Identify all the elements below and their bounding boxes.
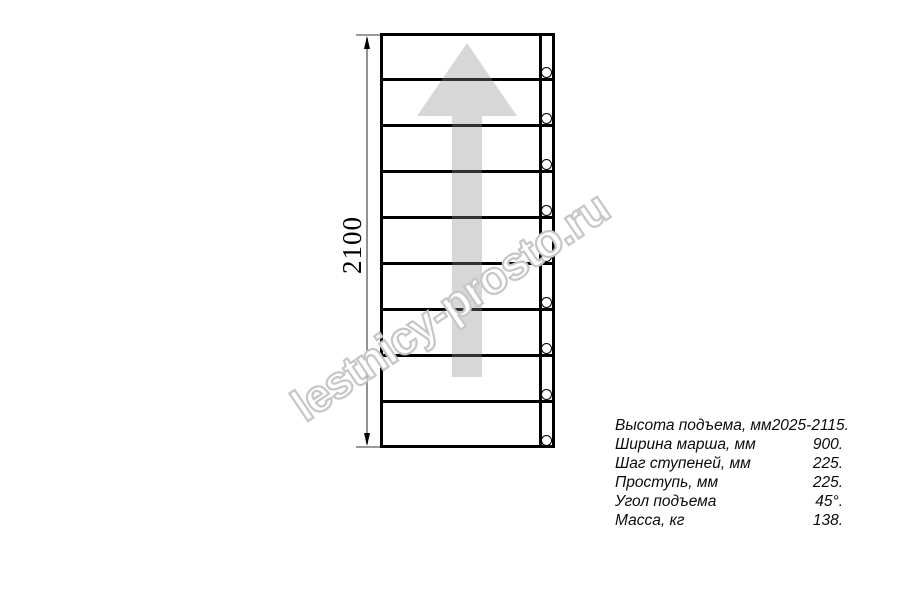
spec-label: Ширина марша, мм bbox=[615, 435, 756, 454]
step-line bbox=[380, 170, 555, 173]
bolt-circle bbox=[541, 67, 552, 78]
spec-row: Проступь, мм 225. bbox=[615, 473, 843, 492]
step-line bbox=[380, 124, 555, 127]
step-line bbox=[380, 78, 555, 81]
spec-row: Шаг ступеней, мм 225. bbox=[615, 454, 843, 473]
bolt-circle bbox=[541, 159, 552, 170]
spec-value: 45°. bbox=[815, 492, 843, 511]
spec-value: 225. bbox=[813, 454, 843, 473]
spec-label: Шаг ступеней, мм bbox=[615, 454, 751, 473]
dimension-label: 2100 bbox=[338, 205, 366, 285]
spec-row: Ширина марша, мм 900. bbox=[615, 435, 843, 454]
bolt-circle bbox=[541, 343, 552, 354]
spec-label: Угол подъема bbox=[615, 492, 716, 511]
spec-row: Масса, кг 138. bbox=[615, 511, 843, 530]
dimension-extension-top bbox=[356, 34, 383, 36]
spec-row: Высота подъема, мм 2025-2115. bbox=[615, 416, 843, 435]
spec-label: Масса, кг bbox=[615, 511, 684, 530]
stair-drawing-canvas: 2100 lestnicy-prosto.ru Высота подъема, … bbox=[0, 0, 900, 600]
bolt-circle bbox=[541, 297, 552, 308]
bolt-circle bbox=[541, 435, 552, 446]
spec-value: 138. bbox=[813, 511, 843, 530]
dimension-arrowhead-down-icon bbox=[364, 433, 370, 446]
step-line bbox=[380, 216, 555, 219]
spec-value: 2025-2115. bbox=[772, 416, 849, 435]
spec-value: 900. bbox=[813, 435, 843, 454]
bolt-circle bbox=[541, 389, 552, 400]
spec-label: Проступь, мм bbox=[615, 473, 718, 492]
dimension-arrowhead-up-icon bbox=[364, 36, 370, 49]
spec-label: Высота подъема, мм bbox=[615, 416, 772, 435]
bolt-circle bbox=[541, 113, 552, 124]
step-line bbox=[380, 400, 555, 403]
spec-row: Угол подъема 45°. bbox=[615, 492, 843, 511]
specs-table: Высота подъема, мм 2025-2115. Ширина мар… bbox=[615, 416, 843, 530]
spec-value: 225. bbox=[813, 473, 843, 492]
